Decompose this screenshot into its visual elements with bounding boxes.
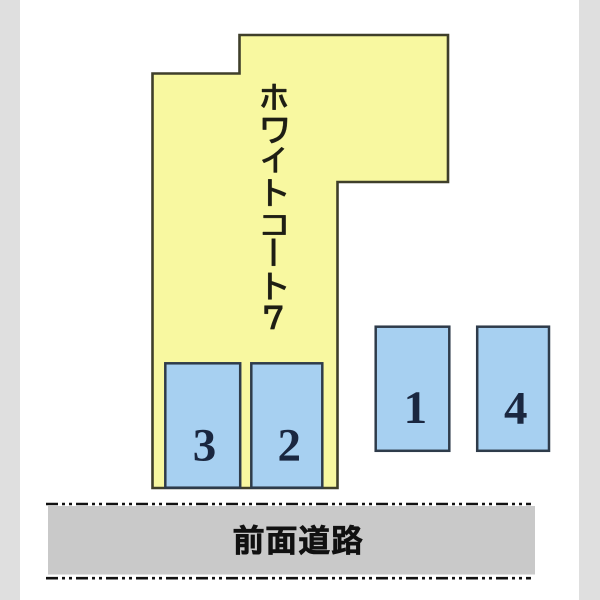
svg-text:4: 4 — [504, 383, 528, 435]
svg-text:2: 2 — [277, 419, 301, 471]
svg-text:1: 1 — [404, 382, 428, 434]
svg-text:3: 3 — [193, 420, 217, 472]
